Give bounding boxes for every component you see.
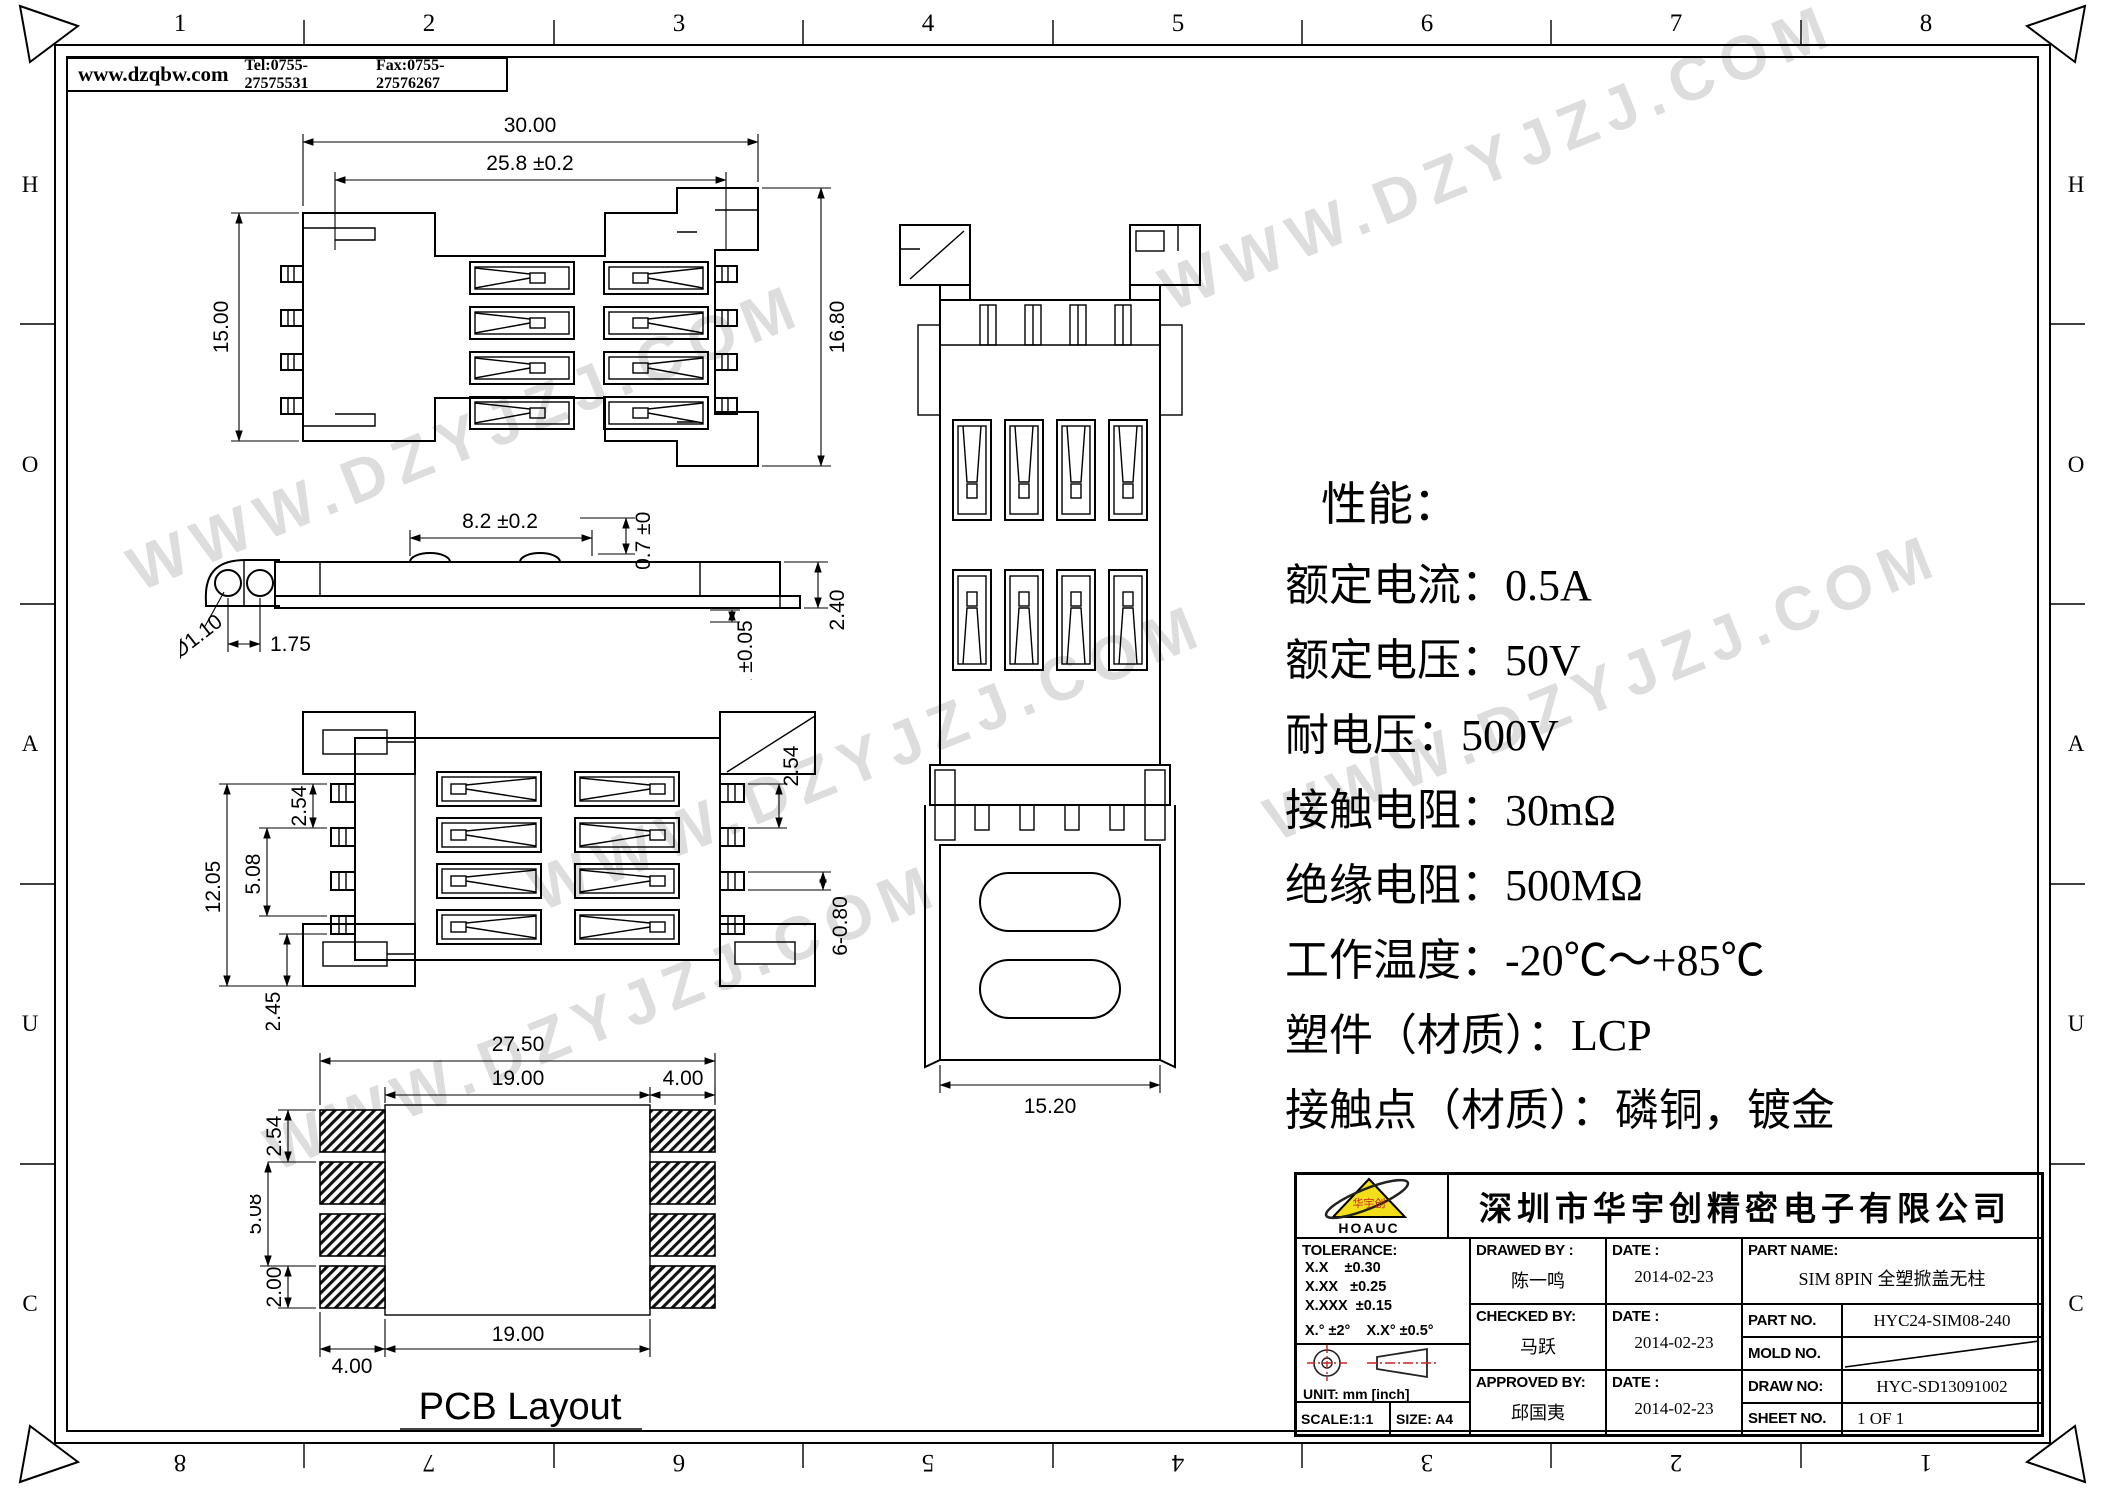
mold-no-value-empty	[1843, 1338, 2041, 1369]
size-label: SIZE: A4	[1391, 1403, 1453, 1434]
zone-letter-right: A	[2062, 731, 2090, 757]
dim-label: 12.05	[202, 861, 225, 914]
zone-number-bottom: 6	[664, 1448, 694, 1476]
part-name-cell: PART NAME: SIM 8PIN 全塑掀盖无柱	[1741, 1237, 2041, 1303]
drawed-by-label: DRAWED BY :	[1471, 1239, 1605, 1259]
dim-label: 25.8 ±0.2	[486, 152, 573, 175]
zone-number-bottom: 7	[414, 1448, 444, 1476]
draw-no-cell: DRAW NO: HYC-SD13091002	[1741, 1369, 2041, 1402]
spec-line: 绝缘电阻：500MΩ	[1285, 848, 2065, 923]
tolerance-row: X.XX ±0.25	[1297, 1278, 1469, 1297]
vendor-telephone: Tel:0755-27575531	[245, 57, 360, 93]
approved-date: 2014-02-23	[1607, 1399, 1741, 1419]
dim-label: 19.00	[492, 1323, 545, 1346]
dim-label: 27.50	[492, 1033, 545, 1056]
date-label: DATE :	[1607, 1305, 1741, 1325]
sheet-no-value: 1 OF 1	[1843, 1404, 2041, 1434]
zone-number-bottom: 8	[165, 1448, 195, 1476]
dim-label: 2.40	[826, 590, 849, 631]
checked-by-label: CHECKED BY:	[1471, 1305, 1605, 1325]
zone-number-top: 5	[1163, 10, 1193, 38]
company-name: 深圳市华宇创精密电子有限公司	[1447, 1175, 2041, 1237]
dim-label: 5.08	[250, 1194, 266, 1235]
pcb-pads	[320, 1110, 715, 1308]
zone-letter-left: C	[16, 1291, 44, 1317]
spec-line: 塑件（材质）：LCP	[1285, 998, 2065, 1073]
zone-number-top: 1	[165, 10, 195, 38]
dim-label: 30.00	[504, 114, 557, 137]
drawed-by-cell: DRAWED BY : 陈一鸣	[1469, 1237, 1605, 1303]
vendor-fax: Fax:0755-27576267	[376, 57, 496, 93]
drawed-date: 2014-02-23	[1607, 1267, 1741, 1287]
zone-number-top: 7	[1661, 10, 1691, 38]
zone-letter-right: U	[2062, 1011, 2090, 1037]
dim-label: 8.2 ±0.2	[462, 510, 538, 533]
sheet-no-cell: SHEET NO. 1 OF 1	[1741, 1402, 2041, 1434]
zone-number-bottom: 4	[1163, 1448, 1193, 1476]
tolerance-row: X.XXX ±0.15	[1297, 1297, 1469, 1316]
zone-number-bottom: 3	[1412, 1448, 1442, 1476]
top-teeth	[980, 305, 1131, 345]
bottom-view-drawing: 12.05 5.08 2.54 2.45 2.54 6-0.80	[175, 680, 865, 1030]
zone-letter-right: O	[2062, 452, 2090, 478]
dim-label: 2.54	[288, 785, 311, 826]
approved-by-cell: APPROVED BY: 邱国夷	[1469, 1369, 1605, 1434]
vendor-header: www.dzqbw.com Tel:0755-27575531 Fax:0755…	[66, 57, 508, 92]
zone-letter-left: U	[16, 1011, 44, 1037]
dim-label: 5.08	[242, 854, 265, 895]
dim-label: 15.20	[1024, 1095, 1077, 1118]
zone-number-top: 3	[664, 10, 694, 38]
zone-number-top: 8	[1911, 10, 1941, 38]
mold-no-cell: MOLD NO.	[1741, 1336, 2041, 1369]
zone-number-top: 6	[1412, 10, 1442, 38]
projection-symbol-icon	[1297, 1345, 1469, 1381]
dim-label: 15.00	[210, 301, 233, 354]
zone-letter-left: H	[16, 172, 44, 198]
unit-label: UNIT: mm [inch]	[1297, 1386, 1469, 1402]
spec-line: 接触电阻：30mΩ	[1285, 773, 2065, 848]
spec-line: 耐电压：500V	[1285, 698, 2065, 773]
dim-label: 2.54	[263, 1115, 286, 1156]
drawed-date-cell: DATE : 2014-02-23	[1605, 1237, 1741, 1303]
part-name-value: SIM 8PIN 全塑掀盖无柱	[1743, 1265, 2041, 1291]
pcb-layout-drawing: 27.50 19.00 4.00 2.54 5.08 2.00 4.00 19.…	[250, 1015, 790, 1435]
contact-windows	[470, 262, 708, 429]
mold-no-label: MOLD NO.	[1743, 1338, 1843, 1369]
top-view-drawing: 30.00 25.8 ±0.2 15.00 16.80	[175, 100, 895, 500]
draw-no-value: HYC-SD13091002	[1843, 1371, 2041, 1402]
logo-text: HOAUC	[1338, 1220, 1399, 1236]
part-no-label: PART NO.	[1743, 1305, 1843, 1336]
scale-size-row: SCALE:1:1 SIZE: A4	[1297, 1401, 1469, 1434]
dim-label: 19.00	[492, 1067, 545, 1090]
title-block: 华宇创 HOAUC 深圳市华宇创精密电子有限公司 TOLERANCE: X.X …	[1294, 1172, 2044, 1437]
spec-line: 接触点（材质）：磷铜，镀金	[1285, 1073, 2065, 1148]
approved-date-cell: DATE : 2014-02-23	[1605, 1369, 1741, 1434]
open-view-drawing: 15.20	[880, 205, 1220, 1120]
checked-by-cell: CHECKED BY: 马跃	[1469, 1303, 1605, 1369]
hoauc-logo-icon: 华宇创 HOAUC	[1297, 1175, 1447, 1237]
vendor-website: www.dzqbw.com	[78, 62, 229, 87]
tolerance-angle-row: X.° ±2° X.X° ±0.5°	[1297, 1322, 1469, 1341]
dim-label: 6-0.80	[829, 896, 852, 956]
contact-slots	[953, 420, 1147, 670]
drawed-by-name: 陈一鸣	[1471, 1267, 1605, 1293]
zone-letter-right: C	[2062, 1291, 2090, 1317]
checked-date-cell: DATE : 2014-02-23	[1605, 1303, 1741, 1369]
zone-number-bottom: 2	[1661, 1448, 1691, 1476]
side-view-drawing: 8.2 ±0.2 0.7 ±0.1 Ø1.10 1.75 0.1 ±0.05 2…	[180, 510, 860, 680]
pcb-layout-label: PCB Layout	[419, 1386, 622, 1428]
logo-mark-text: 华宇创	[1353, 1196, 1386, 1210]
performance-specs: 性能： 额定电流：0.5A 额定电压：50V 耐电压：500V 接触电阻：30m…	[1285, 468, 2065, 1148]
tolerance-block: TOLERANCE: X.X ±0.30 X.XX ±0.25 X.XXX ±0…	[1297, 1237, 1469, 1343]
dim-label: 4.00	[332, 1355, 373, 1378]
hinge-teeth	[975, 805, 1124, 830]
dim-label: Ø1.10	[180, 610, 227, 663]
tolerance-label: TOLERANCE:	[1297, 1239, 1469, 1259]
draw-no-label: DRAW NO:	[1743, 1371, 1843, 1402]
checked-date: 2014-02-23	[1607, 1333, 1741, 1353]
tolerance-row: X.X ±0.30	[1297, 1259, 1469, 1278]
zone-letter-left: A	[16, 731, 44, 757]
part-no-value: HYC24-SIM08-240	[1843, 1305, 2041, 1336]
contact-windows	[437, 772, 679, 944]
zone-number-bottom: 1	[1911, 1448, 1941, 1476]
spec-line: 工作温度：-20℃～+85℃	[1285, 923, 2065, 998]
spec-line: 额定电流：0.5A	[1285, 548, 2065, 623]
spec-line: 额定电压：50V	[1285, 623, 2065, 698]
zone-number-bottom: 5	[913, 1448, 943, 1476]
dim-label: 0.1 ±0.05	[734, 620, 757, 680]
sheet-no-label: SHEET NO.	[1743, 1404, 1843, 1434]
approved-by-name: 邱国夷	[1471, 1399, 1605, 1425]
dim-label: 0.7 ±0.1	[632, 510, 655, 570]
part-name-label: PART NAME:	[1743, 1239, 2041, 1259]
scale-label: SCALE:1:1	[1297, 1403, 1391, 1434]
checked-by-name: 马跃	[1471, 1333, 1605, 1359]
zone-number-top: 4	[913, 10, 943, 38]
drawing-sheet: WWW.DZYJZJ.COM WWW.DZYJZJ.COM WWW.DZYJZJ…	[0, 0, 2105, 1488]
approved-by-label: APPROVED BY:	[1471, 1371, 1605, 1391]
date-label: DATE :	[1607, 1371, 1741, 1391]
dim-label: 4.00	[663, 1067, 704, 1090]
zone-letter-right: H	[2062, 172, 2090, 198]
dim-label: 2.00	[263, 1267, 286, 1308]
zone-letter-left: O	[16, 452, 44, 478]
part-no-cell: PART NO. HYC24-SIM08-240	[1741, 1303, 2041, 1336]
date-label: DATE :	[1607, 1239, 1741, 1259]
zone-number-top: 2	[414, 10, 444, 38]
projection-unit-block: UNIT: mm [inch]	[1297, 1343, 1469, 1401]
company-logo: 华宇创 HOAUC	[1297, 1175, 1447, 1237]
dim-label: 1.75	[270, 633, 311, 656]
specs-title: 性能：	[1321, 468, 2065, 534]
dim-label: 2.54	[780, 745, 803, 786]
dim-label: 16.80	[826, 301, 849, 354]
